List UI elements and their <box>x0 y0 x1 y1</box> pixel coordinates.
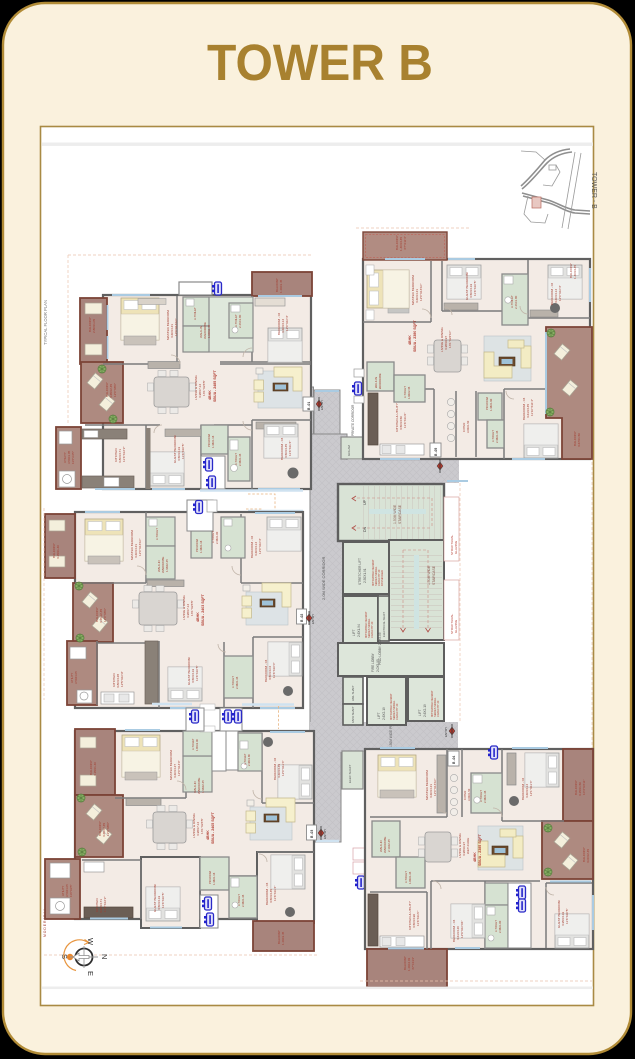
svg-text:2.80X1.05: 2.80X1.05 <box>92 319 96 333</box>
svg-text:A.TOILET: A.TOILET <box>211 531 215 543</box>
svg-text:12'0"X13'10": 12'0"X13'10" <box>174 319 178 337</box>
svg-text:11'6"X12'2": 11'6"X12'2" <box>122 446 126 462</box>
svg-text:1.48X1.90: 1.48X1.90 <box>489 398 493 411</box>
svg-text:TOWER B: TOWER B <box>207 34 433 91</box>
svg-text:A.TOILET: A.TOILET <box>403 386 407 398</box>
svg-text:11'6"X11'6": 11'6"X11'6" <box>403 413 407 428</box>
svg-text:PR ROOM: PR ROOM <box>195 538 199 552</box>
svg-text:2.10X2.45: 2.10X2.45 <box>387 839 391 852</box>
svg-text:A.TOILET: A.TOILET <box>155 528 159 540</box>
svg-text:11'6"X10'5": 11'6"X10'5" <box>181 443 185 459</box>
svg-text:3.15X1.40: 3.15X1.40 <box>56 545 60 559</box>
svg-text:SBUA - 2465 SQFT: SBUA - 2465 SQFT <box>211 811 215 844</box>
svg-text:4BHK: 4BHK <box>206 830 210 840</box>
svg-text:WARDROBE: WARDROBE <box>378 373 382 389</box>
svg-text:LIFT: LIFT <box>418 709 422 716</box>
svg-text:2.46X1.80: 2.46X1.80 <box>514 295 518 309</box>
svg-text:ENTRY: ENTRY <box>320 400 324 410</box>
svg-text:HML SHAFT: HML SHAFT <box>351 685 355 701</box>
svg-text:2.46X1.80: 2.46X1.80 <box>215 531 219 544</box>
svg-text:SBUA - 2403 SQFT: SBUA - 2403 SQFT <box>201 593 205 626</box>
svg-text:A.TOILET: A.TOILET <box>191 738 195 750</box>
svg-text:12'0"X10'4": 12'0"X10'4" <box>258 538 262 554</box>
svg-text:ENTRY: ENTRY <box>311 614 315 624</box>
svg-text:GLAZING: GLAZING <box>454 540 458 554</box>
svg-text:STAIRCASE: STAIRCASE <box>398 504 402 524</box>
svg-text:13'1"X23'5": 13'1"X23'5" <box>190 600 194 616</box>
svg-text:A.TOILET: A.TOILET <box>404 871 408 883</box>
svg-text:3.00X1.50: 3.00X1.50 <box>467 788 471 801</box>
svg-text:A.TOILET: A.TOILET <box>234 453 238 465</box>
svg-text:10'4"X4'11": 10'4"X4'11" <box>582 779 586 795</box>
svg-text:PR ROOM: PR ROOM <box>207 433 211 447</box>
svg-text:3.67X1.50: 3.67X1.50 <box>577 433 581 447</box>
svg-text:1.40X3.45: 1.40X3.45 <box>279 279 283 293</box>
svg-text:3.00X1.50: 3.00X1.50 <box>466 420 470 433</box>
svg-text:4BHK: 4BHK <box>196 612 200 622</box>
svg-text:3.15X1.40: 3.15X1.40 <box>93 762 97 776</box>
svg-text:4BHK: 4BHK <box>473 852 477 862</box>
svg-text:2.46X1.80: 2.46X1.80 <box>247 754 251 766</box>
svg-text:FIRE LOBBY: FIRE LOBBY <box>371 652 375 672</box>
svg-text:SBUA - 2485 SQFT: SBUA - 2485 SQFT <box>213 369 217 402</box>
svg-text:CAPACITY 20: CAPACITY 20 <box>370 621 374 638</box>
svg-text:1.98X2.45: 1.98X2.45 <box>201 780 205 793</box>
svg-text:11'6"X11'4": 11'6"X11'4" <box>273 886 277 901</box>
svg-text:B -01: B -01 <box>307 402 311 410</box>
svg-text:ELEC SHAFT: ELEC SHAFT <box>348 764 352 783</box>
svg-text:12'0"X8'0": 12'0"X8'0" <box>106 822 110 836</box>
svg-text:A.TOILET: A.TOILET <box>231 676 235 688</box>
svg-text:11'6"X10'5": 11'6"X10'5" <box>565 908 569 924</box>
svg-text:A.TOILET: A.TOILET <box>193 307 197 320</box>
svg-text:12'5"X10'9": 12'5"X10'9" <box>120 671 124 687</box>
svg-text:WET-CARE: WET-CARE <box>466 838 470 854</box>
svg-text:11'6"X10'0": 11'6"X10'0" <box>272 662 276 678</box>
svg-text:STAIRCASE: STAIRCASE <box>432 565 436 585</box>
svg-text:1.40X3.45: 1.40X3.45 <box>281 931 285 945</box>
svg-text:11'6"X12'2": 11'6"X12'2" <box>103 896 107 912</box>
svg-text:12'0"X10'4": 12'0"X10'4" <box>285 315 289 331</box>
svg-text:N: N <box>100 954 109 959</box>
svg-text:DN: DN <box>363 526 367 532</box>
svg-text:2.46X1.35: 2.46X1.35 <box>235 676 239 689</box>
svg-text:11'6"X11'4": 11'6"X11'4" <box>288 441 292 456</box>
svg-text:ENTRY: ENTRY <box>323 829 327 839</box>
svg-text:12'0"X11'4": 12'0"X11'4" <box>281 760 285 776</box>
svg-text:GOLAM: GOLAM <box>347 445 351 456</box>
svg-text:B -02: B -02 <box>300 614 304 622</box>
svg-text:1.98X2.45: 1.98X2.45 <box>207 324 211 338</box>
svg-text:B -05: B -05 <box>434 448 438 456</box>
svg-text:2.6X2.19: 2.6X2.19 <box>382 707 386 720</box>
svg-text:1.90X2.45: 1.90X2.45 <box>407 386 411 399</box>
svg-text:CAPACITY 20: CAPACITY 20 <box>436 700 440 717</box>
svg-text:13'1"X23'5": 13'1"X23'5" <box>200 818 204 834</box>
svg-text:TYPICAL FLOOR PLAN: TYPICAL FLOOR PLAN <box>43 300 48 345</box>
svg-text:12'0"X8'0": 12'0"X8'0" <box>103 608 107 622</box>
svg-text:ELECTRICAL SHAFT: ELECTRICAL SHAFT <box>382 611 386 637</box>
svg-text:S: S <box>60 954 69 959</box>
svg-text:UP: UP <box>363 499 367 505</box>
svg-text:1.48X1.16: 1.48X1.16 <box>211 435 215 448</box>
svg-text:TOWER - B: TOWER - B <box>590 172 597 209</box>
svg-text:12'0"X14'0": 12'0"X14'0" <box>177 760 181 776</box>
svg-text:11'6"X3'5": 11'6"X3'5" <box>71 451 75 464</box>
svg-text:4BHK: 4BHK <box>408 335 412 345</box>
svg-text:11'6"X10'5": 11'6"X10'5" <box>195 665 199 681</box>
svg-text:FAPA SHAFT: FAPA SHAFT <box>351 706 355 723</box>
svg-text:A.TOILET: A.TOILET <box>237 894 241 906</box>
svg-text:GLAZING: GLAZING <box>454 619 458 633</box>
svg-text:2.50X1.91: 2.50X1.91 <box>363 568 367 583</box>
svg-text:A.TOILET: A.TOILET <box>494 920 498 932</box>
svg-text:4BHK: 4BHK <box>208 390 212 400</box>
svg-text:2.0M WIDE CORRIDOR: 2.0M WIDE CORRIDOR <box>321 557 326 600</box>
svg-text:12'0"X13'10": 12'0"X13'10" <box>138 539 142 557</box>
svg-text:2.46X1.35: 2.46X1.35 <box>495 430 499 443</box>
svg-text:LIFT: LIFT <box>377 712 381 719</box>
svg-text:1.50M WIDE: 1.50M WIDE <box>427 565 431 585</box>
svg-text:2.46X1.35: 2.46X1.35 <box>483 790 487 803</box>
svg-text:PASSENGER: PASSENGER <box>380 570 384 586</box>
svg-text:4'7"X13'2": 4'7"X13'2" <box>411 957 415 970</box>
svg-text:2.6X2.19: 2.6X2.19 <box>423 704 427 717</box>
svg-text:11'6"X3'5": 11'6"X3'5" <box>69 885 73 898</box>
svg-text:1.50M WIDE: 1.50M WIDE <box>393 504 397 524</box>
svg-text:12'0"X10'4": 12'0"X10'4" <box>558 285 562 301</box>
svg-text:ENTRY: ENTRY <box>444 727 448 737</box>
svg-text:W: W <box>86 938 95 946</box>
svg-text:PR ROOM: PR ROOM <box>208 870 212 884</box>
svg-text:A.TOILET: A.TOILET <box>479 790 483 802</box>
svg-text:STRETCHER LIFT: STRETCHER LIFT <box>358 558 362 585</box>
svg-text:2.46X1.80: 2.46X1.80 <box>238 314 242 328</box>
svg-text:3.50X1.05: 3.50X1.05 <box>74 671 78 684</box>
svg-text:1.40X3.45: 1.40X3.45 <box>573 265 577 279</box>
svg-text:12'1"X11'4": 12'1"X11'4" <box>529 780 533 796</box>
svg-text:11'10"X11'4": 11'10"X11'4" <box>530 399 534 416</box>
svg-text:13'1"X23'5": 13'1"X23'5" <box>202 380 206 396</box>
svg-text:4'7"X11'4": 4'7"X11'4" <box>403 236 407 250</box>
svg-text:2.46X1.35: 2.46X1.35 <box>238 453 242 466</box>
svg-text:B -04: B -04 <box>452 756 456 764</box>
svg-text:2.46X1.35: 2.46X1.35 <box>241 894 245 907</box>
svg-text:PWD LOBBY 2.0X5.95: PWD LOBBY 2.0X5.95 <box>378 632 382 665</box>
svg-text:11'6"X10'5": 11'6"X10'5" <box>473 280 477 296</box>
svg-text:1.80X2.46: 1.80X2.46 <box>195 739 199 751</box>
svg-text:FOYER: FOYER <box>462 423 466 432</box>
svg-text:1.48X1.16: 1.48X1.16 <box>199 540 203 553</box>
svg-text:LIFT: LIFT <box>352 629 356 636</box>
svg-text:1.80X1.35: 1.80X1.35 <box>408 871 412 884</box>
svg-text:3.00X2.45: 3.00X2.45 <box>586 849 590 863</box>
svg-text:A.TOILET: A.TOILET <box>243 753 247 765</box>
svg-text:12'6"X10'06": 12'6"X10'06" <box>460 921 464 939</box>
svg-text:WALK-IN: WALK-IN <box>374 377 378 388</box>
svg-text:SBUA - 2385 SQFT: SBUA - 2385 SQFT <box>478 833 482 866</box>
svg-text:2.46X1.80: 2.46X1.80 <box>498 920 502 933</box>
svg-text:1.48X1.16: 1.48X1.16 <box>212 872 216 885</box>
svg-text:CAPACITY 20: CAPACITY 20 <box>395 703 399 720</box>
svg-text:SBUA - 2380 SQFT: SBUA - 2380 SQFT <box>413 319 417 352</box>
svg-text:FOYER: FOYER <box>463 791 467 800</box>
svg-text:E: E <box>86 971 95 976</box>
svg-text:B -03: B -03 <box>310 830 314 838</box>
svg-text:PR ROOM: PR ROOM <box>485 396 489 410</box>
svg-text:2.6X1.94: 2.6X1.94 <box>357 624 361 637</box>
svg-text:13'1"X22'10": 13'1"X22'10" <box>448 331 452 349</box>
svg-text:11'6"X10'5": 11'6"X10'5" <box>161 892 165 908</box>
svg-text:A.TOILET: A.TOILET <box>491 430 495 442</box>
svg-text:1.98X2.45: 1.98X2.45 <box>165 559 169 572</box>
svg-text:12'0"X13'10": 12'0"X13'10" <box>433 779 437 797</box>
svg-text:12'0"X8'0": 12'0"X8'0" <box>113 383 117 397</box>
svg-text:11'6"X11'0": 11'6"X11'0" <box>416 911 420 926</box>
svg-text:12'0"X13'10": 12'0"X13'10" <box>419 284 423 302</box>
